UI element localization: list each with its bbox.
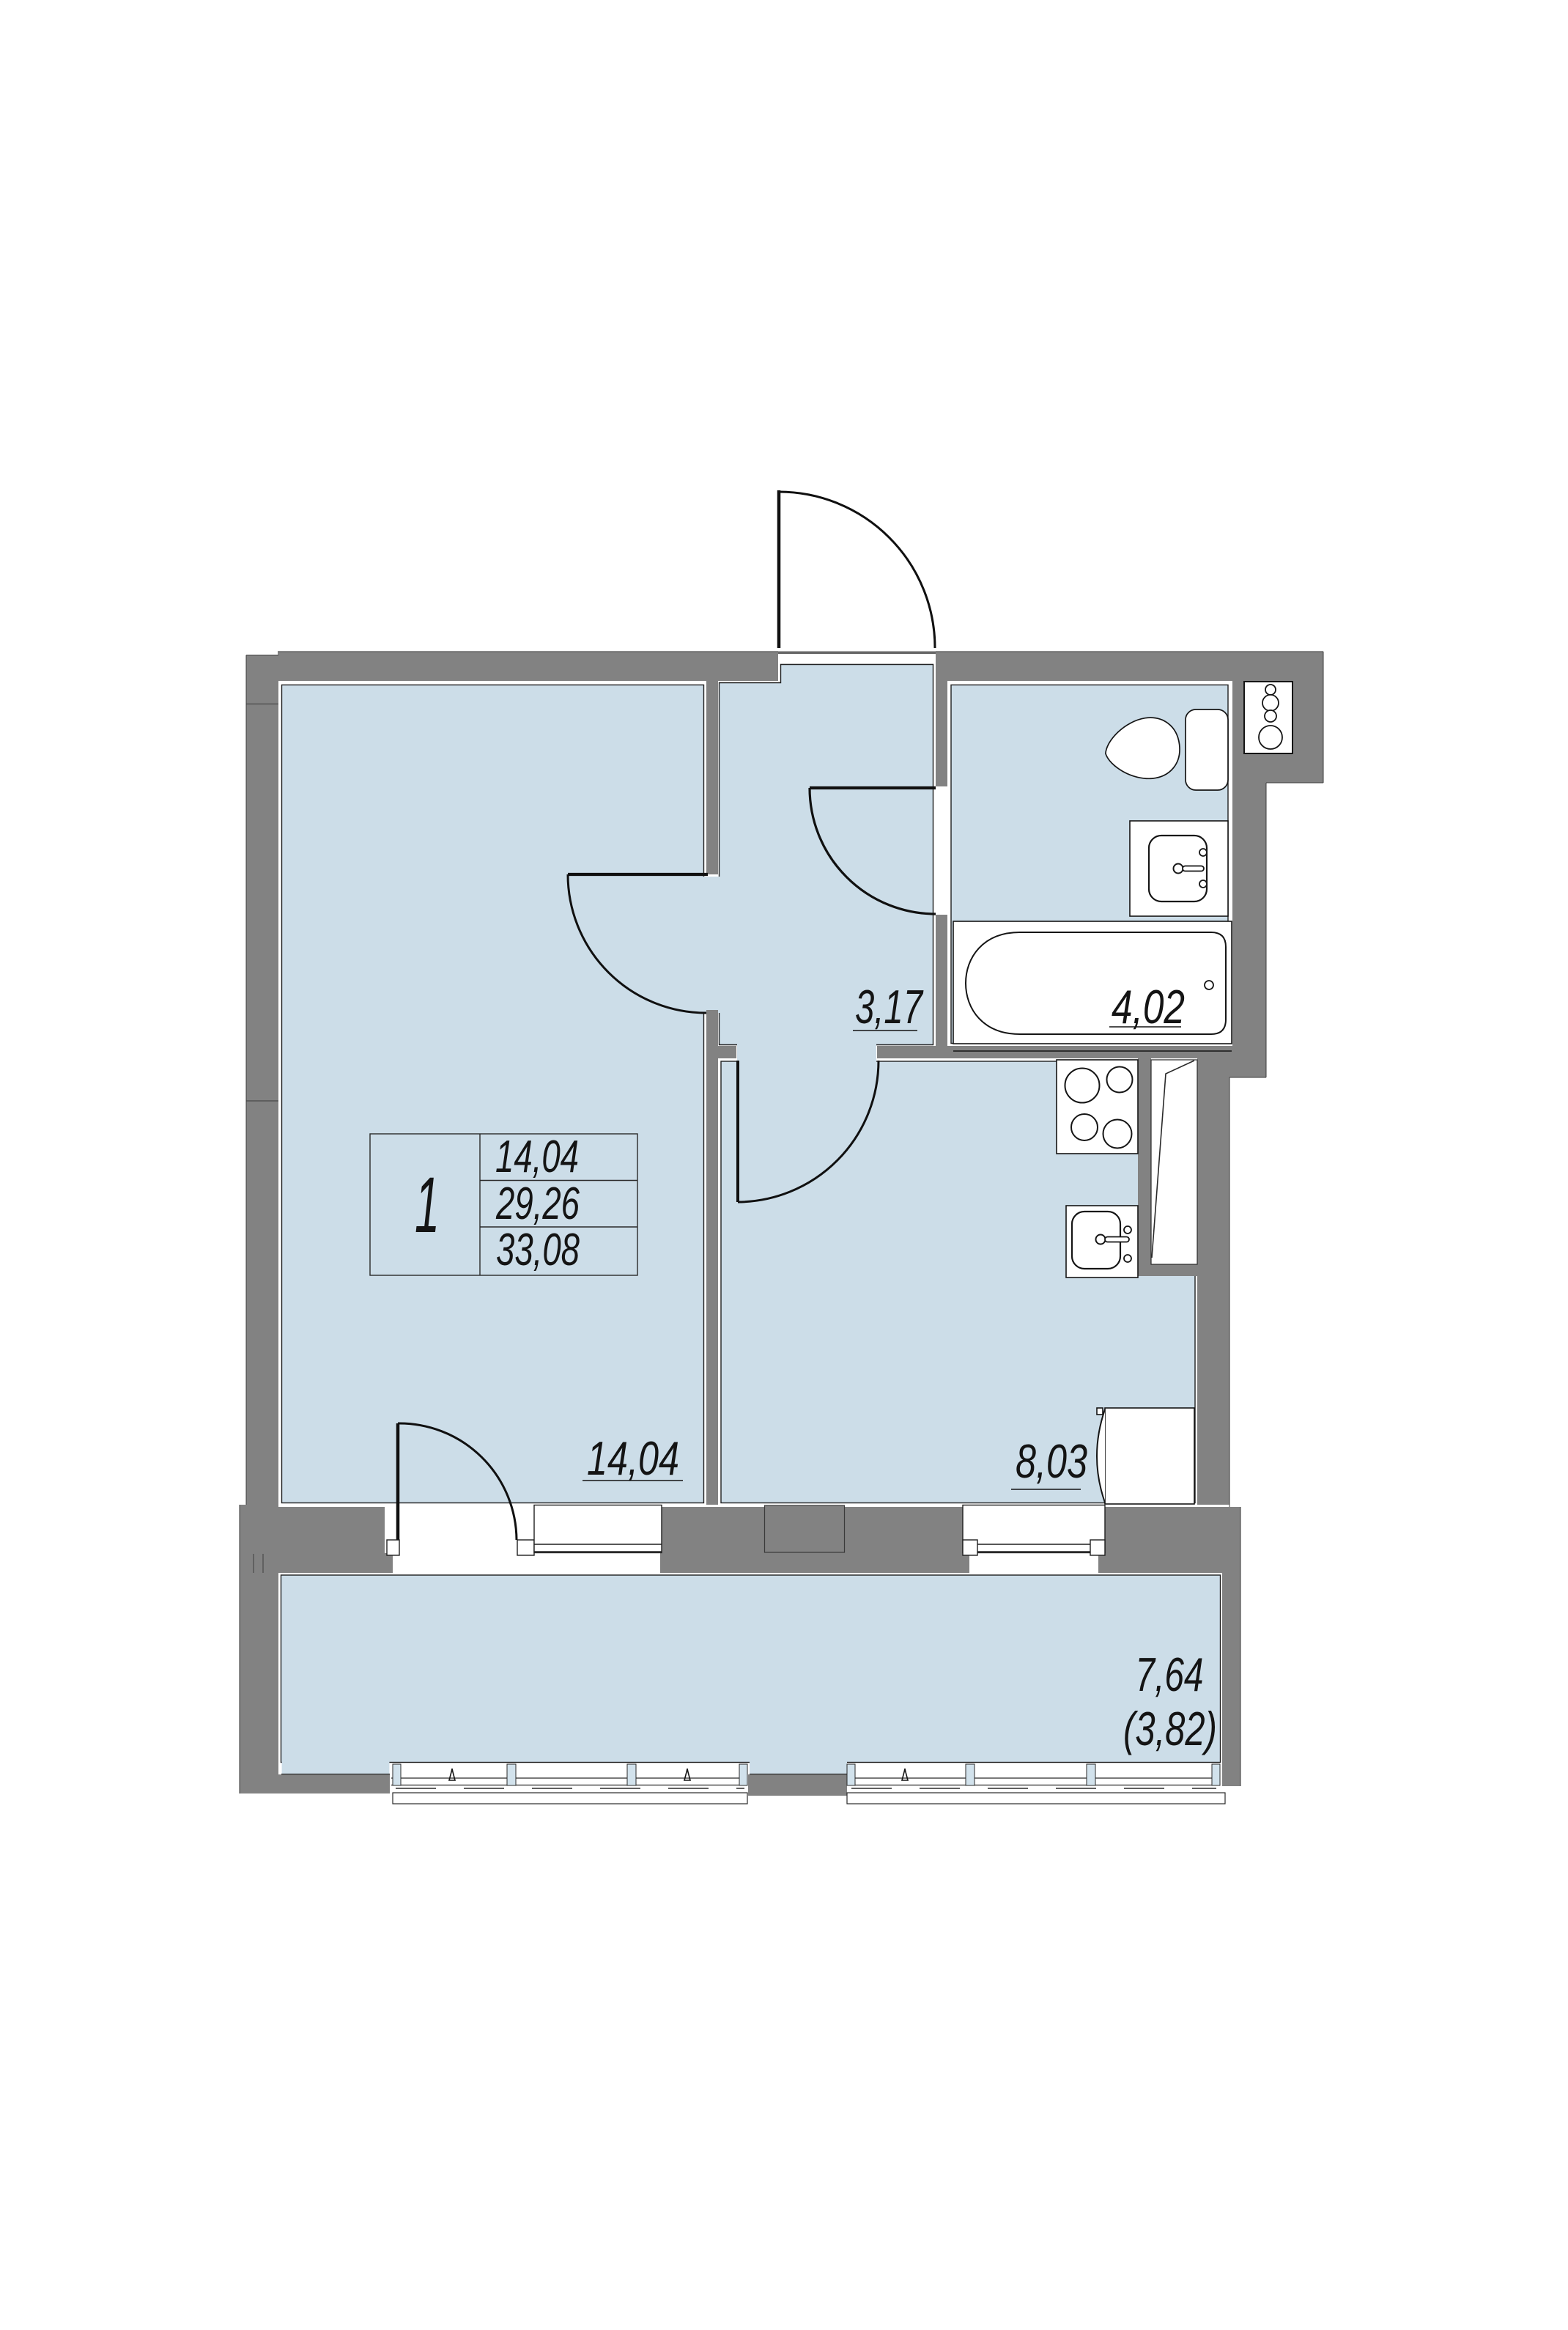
svg-text:1: 1 xyxy=(415,1160,440,1249)
svg-text:7,64: 7,64 xyxy=(1136,1648,1204,1701)
svg-text:33,08: 33,08 xyxy=(496,1225,580,1275)
svg-text:14,04: 14,04 xyxy=(587,1431,679,1485)
svg-text:3,17: 3,17 xyxy=(855,980,924,1033)
svg-text:8,03: 8,03 xyxy=(1016,1434,1087,1488)
svg-text:14,04: 14,04 xyxy=(495,1132,579,1182)
svg-text:29,26: 29,26 xyxy=(495,1179,580,1229)
svg-text:(3,82): (3,82) xyxy=(1123,1702,1217,1755)
svg-text:4,02: 4,02 xyxy=(1112,980,1185,1033)
